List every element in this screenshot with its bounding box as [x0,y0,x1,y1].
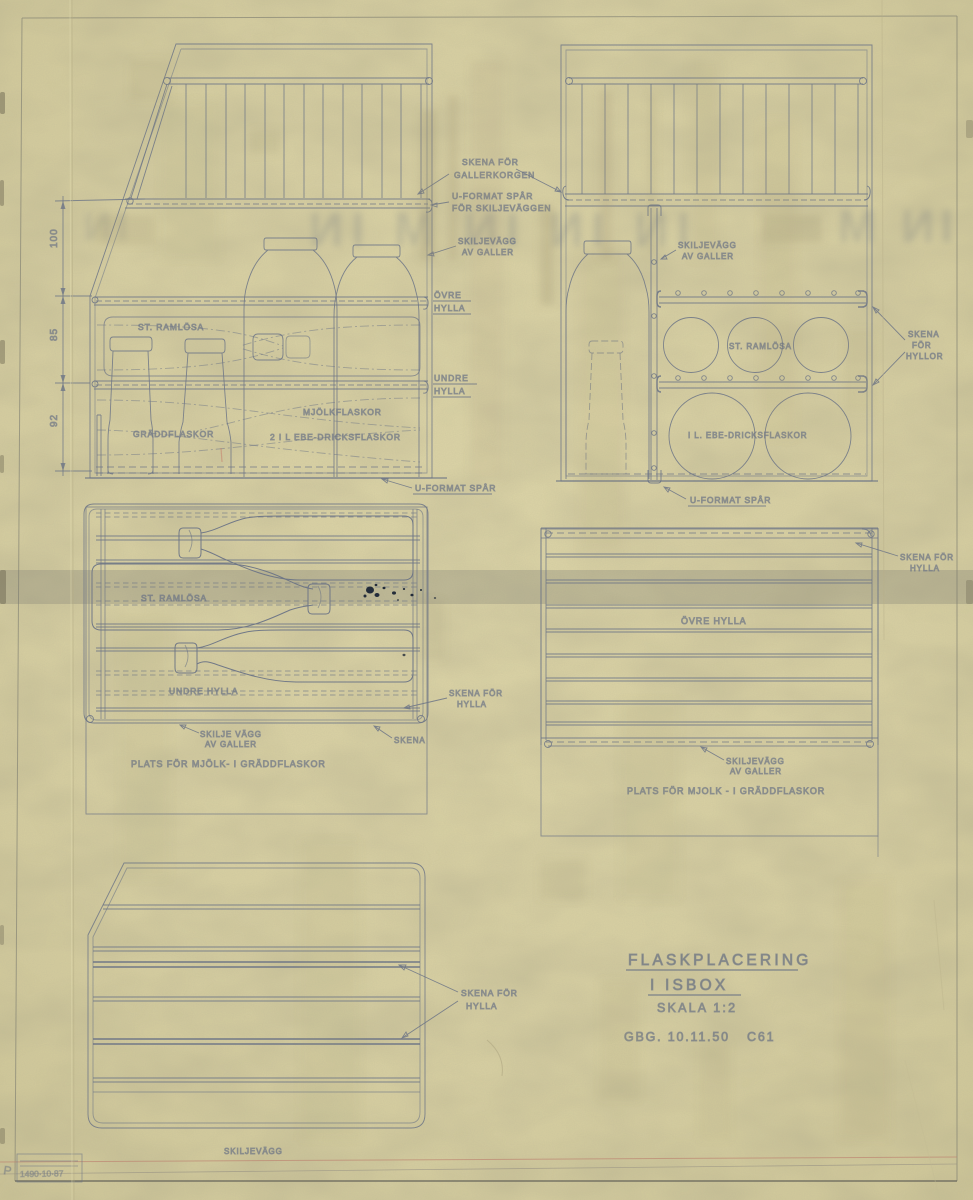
svg-text:IN M: IN M [832,200,953,252]
svg-text:SKENA FÖR: SKENA FÖR [449,689,503,698]
svg-text:ST. RAMLÖSA: ST. RAMLÖSA [138,322,204,332]
svg-text:FLASKPLACERING: FLASKPLACERING [628,952,811,969]
svg-text:SKILJEVÄGG: SKILJEVÄGG [726,757,785,766]
svg-text:HYLLA: HYLLA [457,700,487,709]
svg-text:AV GALLER: AV GALLER [205,740,257,749]
svg-text:I ISBOX: I ISBOX [650,977,728,994]
svg-text:HYLLA: HYLLA [910,564,940,573]
svg-text:U-FORMAT SPÅR: U-FORMAT SPÅR [415,483,496,493]
svg-text:SKILJEVÄGG: SKILJEVÄGG [224,1147,283,1156]
svg-text:MJÖLKFLASKOR: MJÖLKFLASKOR [303,407,382,417]
svg-text:ST. RAMLÖSA: ST. RAMLÖSA [141,593,207,603]
svg-text:SKALA 1:2: SKALA 1:2 [657,1001,737,1015]
svg-text:HYLLOR: HYLLOR [906,352,943,361]
svg-text:HYLLA: HYLLA [466,1001,497,1011]
svg-text:AV GALLER: AV GALLER [730,767,782,776]
svg-text:2 I L EBE-DRICKSFLASKOR: 2 I L EBE-DRICKSFLASKOR [270,432,401,442]
svg-text:HYLLA: HYLLA [434,303,465,313]
svg-text:SKILJE VÄGG: SKILJE VÄGG [200,730,262,739]
svg-text:HYLLA: HYLLA [434,386,465,396]
svg-text:85: 85 [49,328,60,341]
svg-text:UNDRE HYLLA: UNDRE HYLLA [169,686,238,696]
svg-text:SKENA: SKENA [908,330,940,339]
svg-text:92: 92 [49,414,60,427]
svg-text:SKENA FÖR: SKENA FÖR [461,988,518,998]
svg-text:U-FORMAT SPÅR: U-FORMAT SPÅR [690,495,771,505]
svg-text:ÖVRE: ÖVRE [434,290,462,300]
svg-text:100: 100 [49,228,60,248]
svg-text:SKENA: SKENA [394,736,426,745]
svg-text:1490·10·87: 1490·10·87 [20,1168,64,1179]
svg-text:FÖR: FÖR [912,341,932,350]
svg-text:UNDRE: UNDRE [434,373,469,383]
svg-text:ÖVRE HYLLA: ÖVRE HYLLA [681,616,747,626]
svg-text:C61: C61 [747,1030,775,1044]
svg-text:SKENA FÖR: SKENA FÖR [900,553,954,562]
svg-text:GRÄDDFLASKOR: GRÄDDFLASKOR [133,429,214,439]
